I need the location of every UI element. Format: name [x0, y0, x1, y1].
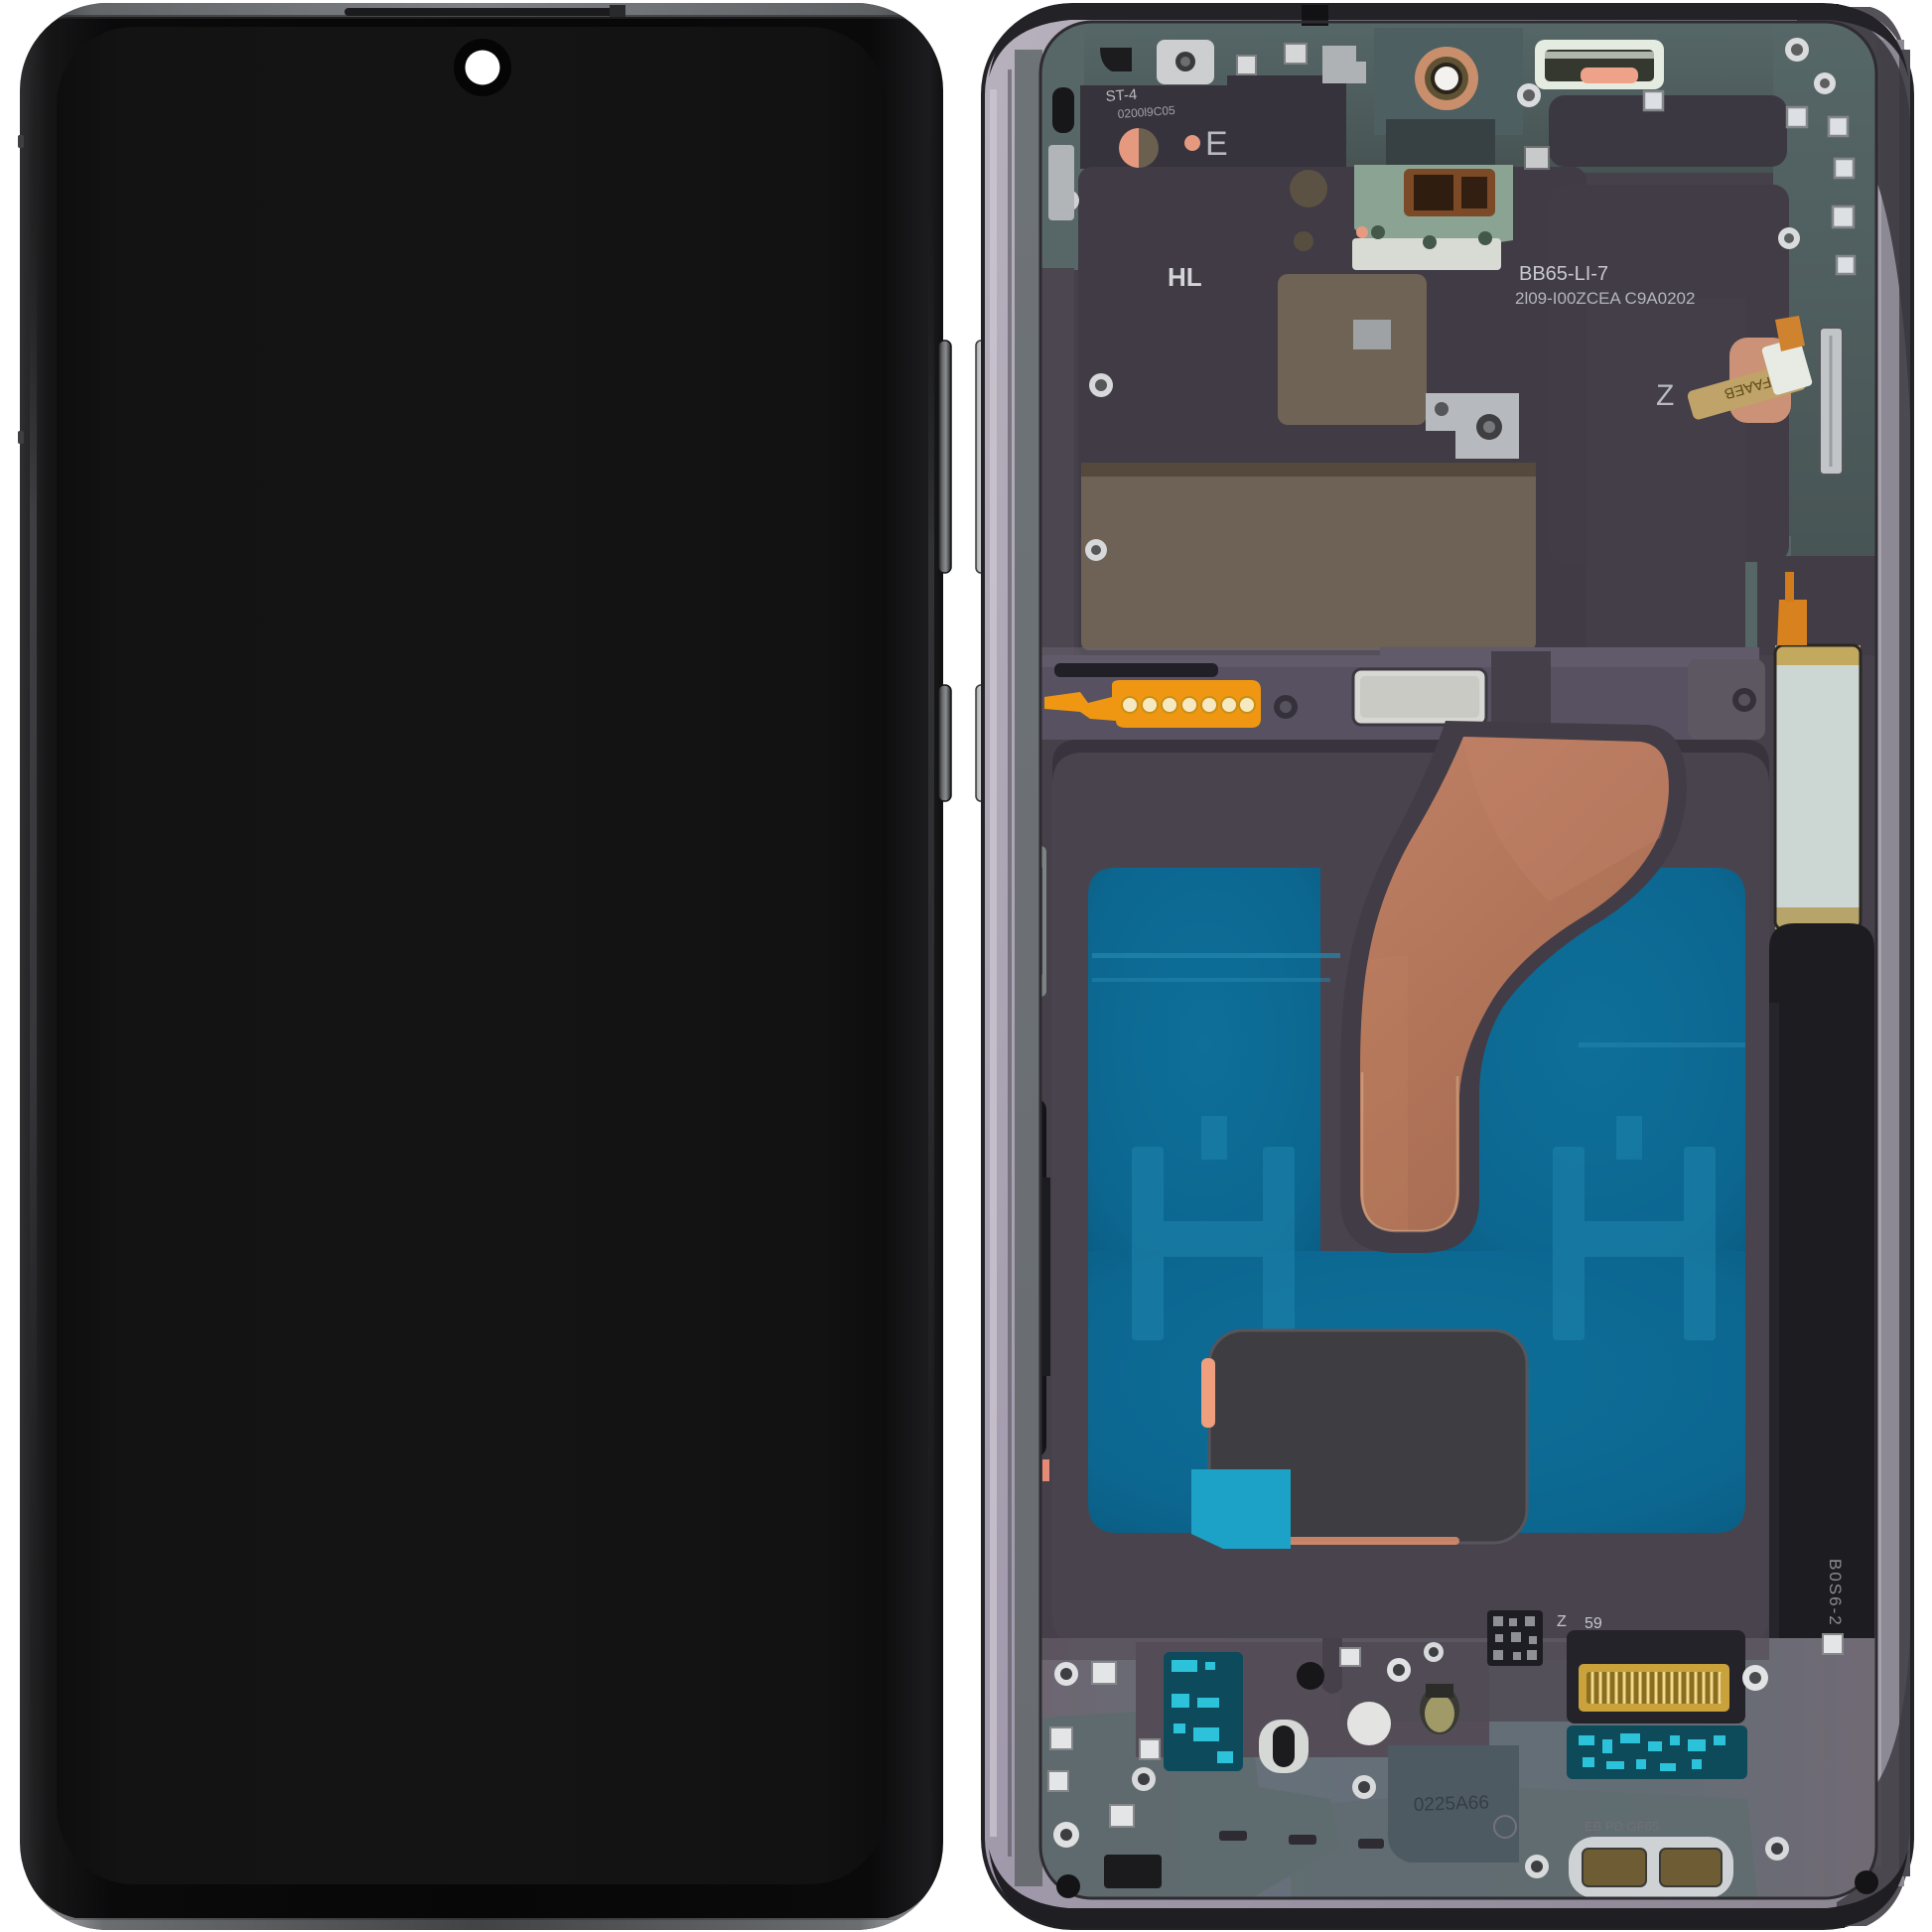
- svg-text:ST-4: ST-4: [1105, 86, 1138, 105]
- svg-text:EB PD GF65: EB PD GF65: [1585, 1819, 1659, 1834]
- svg-text:Z: Z: [1656, 379, 1674, 412]
- svg-text:59: 59: [1585, 1615, 1602, 1632]
- svg-text:HL: HL: [1168, 262, 1202, 292]
- svg-text:2l09-I00ZCEA C9A0202: 2l09-I00ZCEA C9A0202: [1515, 289, 1695, 308]
- svg-text:BB65-LI-7: BB65-LI-7: [1519, 263, 1608, 285]
- svg-text:0225A66: 0225A66: [1413, 1792, 1489, 1816]
- svg-text:Z: Z: [1557, 1613, 1567, 1630]
- svg-text:E: E: [1205, 125, 1228, 163]
